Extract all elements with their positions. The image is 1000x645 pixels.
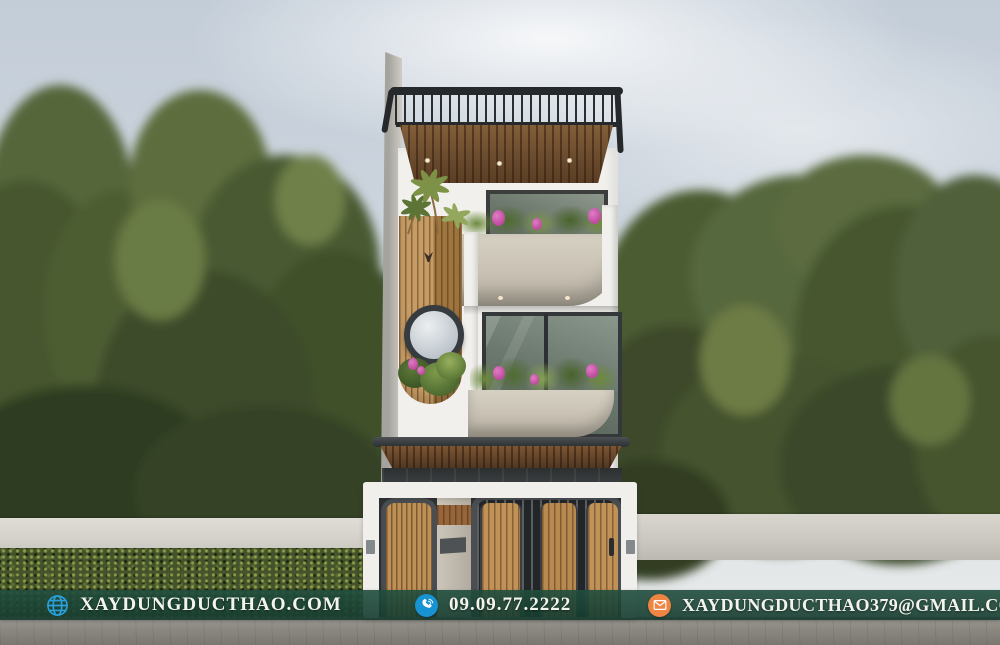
downlight: [566, 158, 573, 163]
pergola-top-frame: [390, 87, 623, 95]
contact-banner: XAYDUNGDUCTHAO.COM 09.09.77.2222 XAYDUNG…: [0, 590, 1000, 620]
flower: [417, 366, 425, 375]
flower: [493, 366, 505, 380]
awning-soffit: [378, 446, 624, 469]
email-label: XAYDUNGDUCTHAO379@GMAIL.COM: [682, 595, 1000, 616]
phone-icon: [415, 594, 438, 617]
frame-latch: [366, 540, 375, 554]
balcony-planter: [455, 234, 617, 306]
phone-label: 09.09.77.2222: [449, 594, 571, 616]
website-contact[interactable]: XAYDUNGDUCTHAO.COM: [46, 590, 342, 620]
email-contact[interactable]: XAYDUNGDUCTHAO379@GMAIL.COM: [648, 590, 1000, 620]
under-balcony-light: [498, 296, 503, 300]
downlight: [496, 161, 503, 166]
plant-blob: [436, 352, 466, 380]
flower: [492, 210, 505, 226]
architectural-render: XAYDUNGDUCTHAO.COM 09.09.77.2222 XAYDUNG…: [0, 0, 1000, 645]
globe-icon: [46, 594, 69, 617]
frame-latch: [626, 540, 635, 554]
flower: [586, 364, 598, 378]
phone-contact[interactable]: 09.09.77.2222: [415, 590, 571, 620]
townhouse: [0, 0, 1000, 645]
flower: [530, 374, 539, 385]
email-icon: [648, 594, 671, 617]
flower: [532, 218, 542, 230]
rooftop-palms: [378, 138, 488, 238]
flower: [588, 208, 601, 224]
awning-edge: [372, 437, 630, 447]
pergola-right-edge: [614, 89, 623, 153]
website-label: XAYDUNGDUCTHAO.COM: [80, 594, 342, 616]
under-balcony-light: [565, 296, 570, 300]
pergola-louvers: [395, 95, 619, 125]
window-planter: [468, 390, 614, 437]
